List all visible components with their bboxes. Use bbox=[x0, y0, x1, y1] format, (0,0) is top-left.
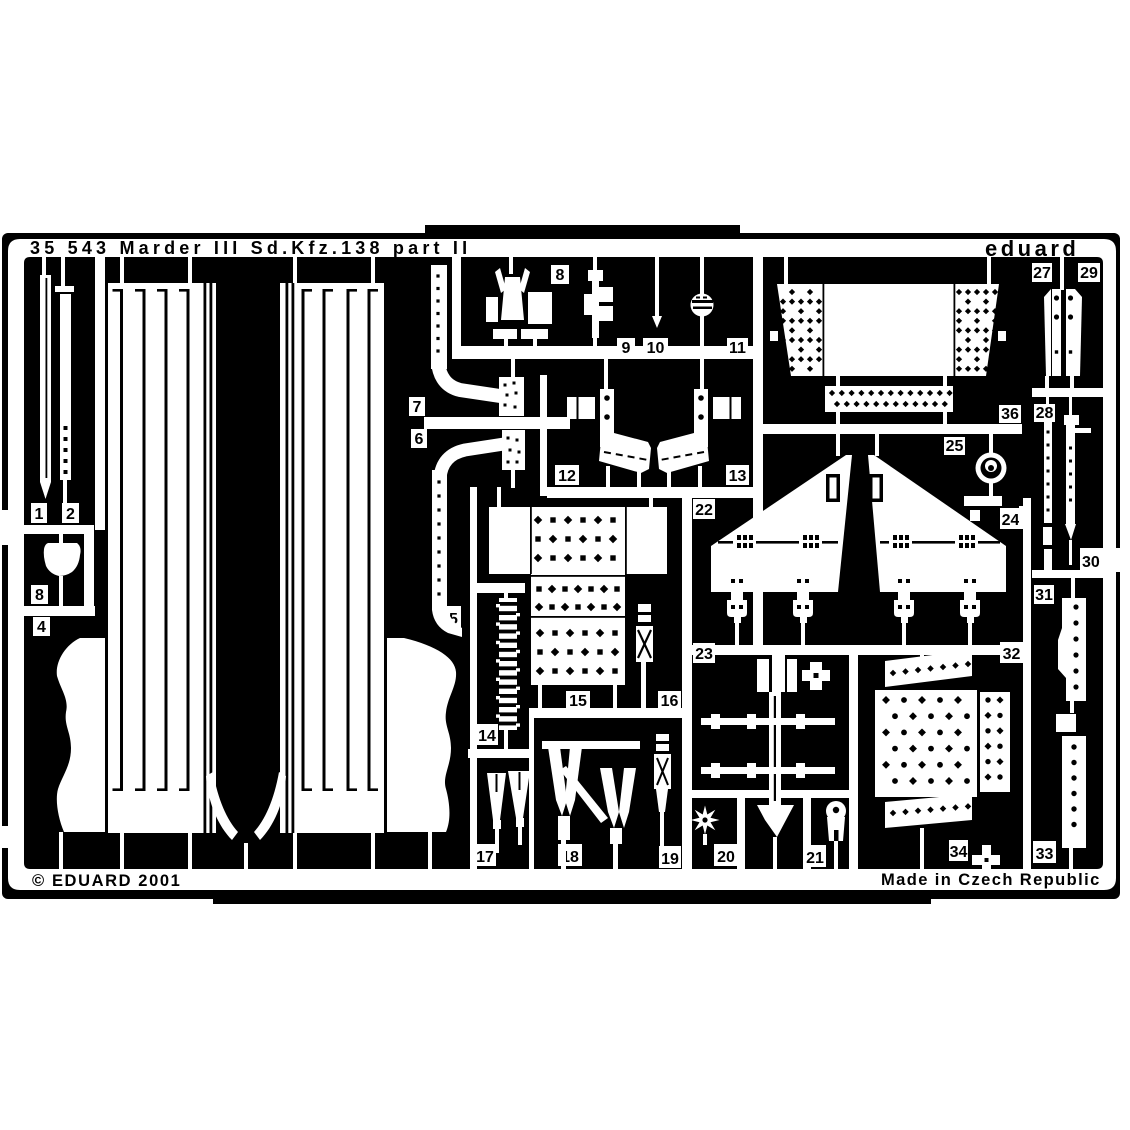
svg-text:6: 6 bbox=[415, 431, 424, 448]
svg-text:24: 24 bbox=[1002, 512, 1020, 529]
svg-text:© EDUARD 2001: © EDUARD 2001 bbox=[32, 872, 181, 890]
svg-text:15: 15 bbox=[569, 693, 587, 710]
svg-text:17: 17 bbox=[476, 849, 494, 866]
svg-text:13: 13 bbox=[729, 468, 747, 485]
svg-text:36: 36 bbox=[1001, 406, 1019, 423]
svg-text:8: 8 bbox=[556, 267, 565, 284]
svg-text:31: 31 bbox=[1035, 587, 1053, 604]
svg-text:14: 14 bbox=[478, 728, 496, 745]
svg-text:16: 16 bbox=[661, 693, 679, 710]
svg-text:9: 9 bbox=[622, 340, 631, 357]
svg-text:4: 4 bbox=[37, 619, 46, 636]
svg-text:35 543 Marder III Sd.Kfz.138: 35 543 Marder III Sd.Kfz.138 part II bbox=[30, 238, 471, 258]
svg-text:34: 34 bbox=[950, 844, 968, 861]
svg-text:10: 10 bbox=[647, 340, 665, 357]
svg-text:12: 12 bbox=[558, 468, 576, 485]
svg-text:27: 27 bbox=[1033, 265, 1051, 282]
svg-text:25: 25 bbox=[946, 438, 964, 455]
svg-text:1: 1 bbox=[35, 506, 44, 523]
svg-text:19: 19 bbox=[661, 851, 679, 868]
svg-text:21: 21 bbox=[806, 850, 824, 867]
svg-text:eduard: eduard bbox=[985, 236, 1079, 261]
svg-text:22: 22 bbox=[695, 502, 713, 519]
svg-text:2: 2 bbox=[66, 506, 75, 523]
svg-text:23: 23 bbox=[695, 646, 713, 663]
svg-text:20: 20 bbox=[717, 849, 735, 866]
svg-text:28: 28 bbox=[1036, 405, 1054, 422]
svg-text:32: 32 bbox=[1003, 646, 1021, 663]
svg-text:8: 8 bbox=[35, 587, 44, 604]
svg-text:33: 33 bbox=[1036, 846, 1054, 863]
svg-text:29: 29 bbox=[1080, 265, 1098, 282]
svg-text:7: 7 bbox=[413, 399, 422, 416]
svg-text:30: 30 bbox=[1082, 554, 1100, 571]
svg-text:11: 11 bbox=[729, 340, 746, 357]
